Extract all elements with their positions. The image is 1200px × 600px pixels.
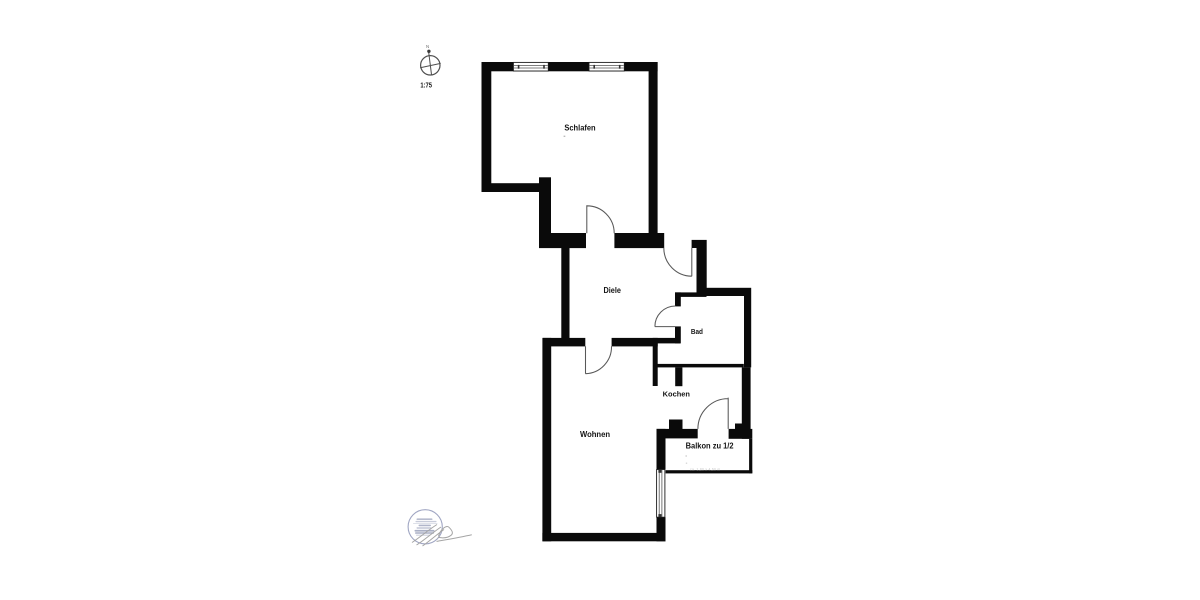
- svg-text:Bad: Bad: [691, 327, 703, 336]
- svg-text:Balkon zu 1/2: Balkon zu 1/2: [686, 442, 734, 451]
- svg-text:Schlafen: Schlafen: [564, 123, 595, 132]
- svg-text:Kochen: Kochen: [663, 390, 691, 399]
- svg-text:1:75: 1:75: [420, 83, 432, 90]
- svg-text:Wohnen: Wohnen: [580, 430, 610, 439]
- svg-text:N: N: [426, 44, 429, 49]
- svg-text:Diele: Diele: [604, 286, 622, 295]
- svg-text:ca. 1,80 x 4,60 m: ca. 1,80 x 4,60 m: [690, 467, 720, 471]
